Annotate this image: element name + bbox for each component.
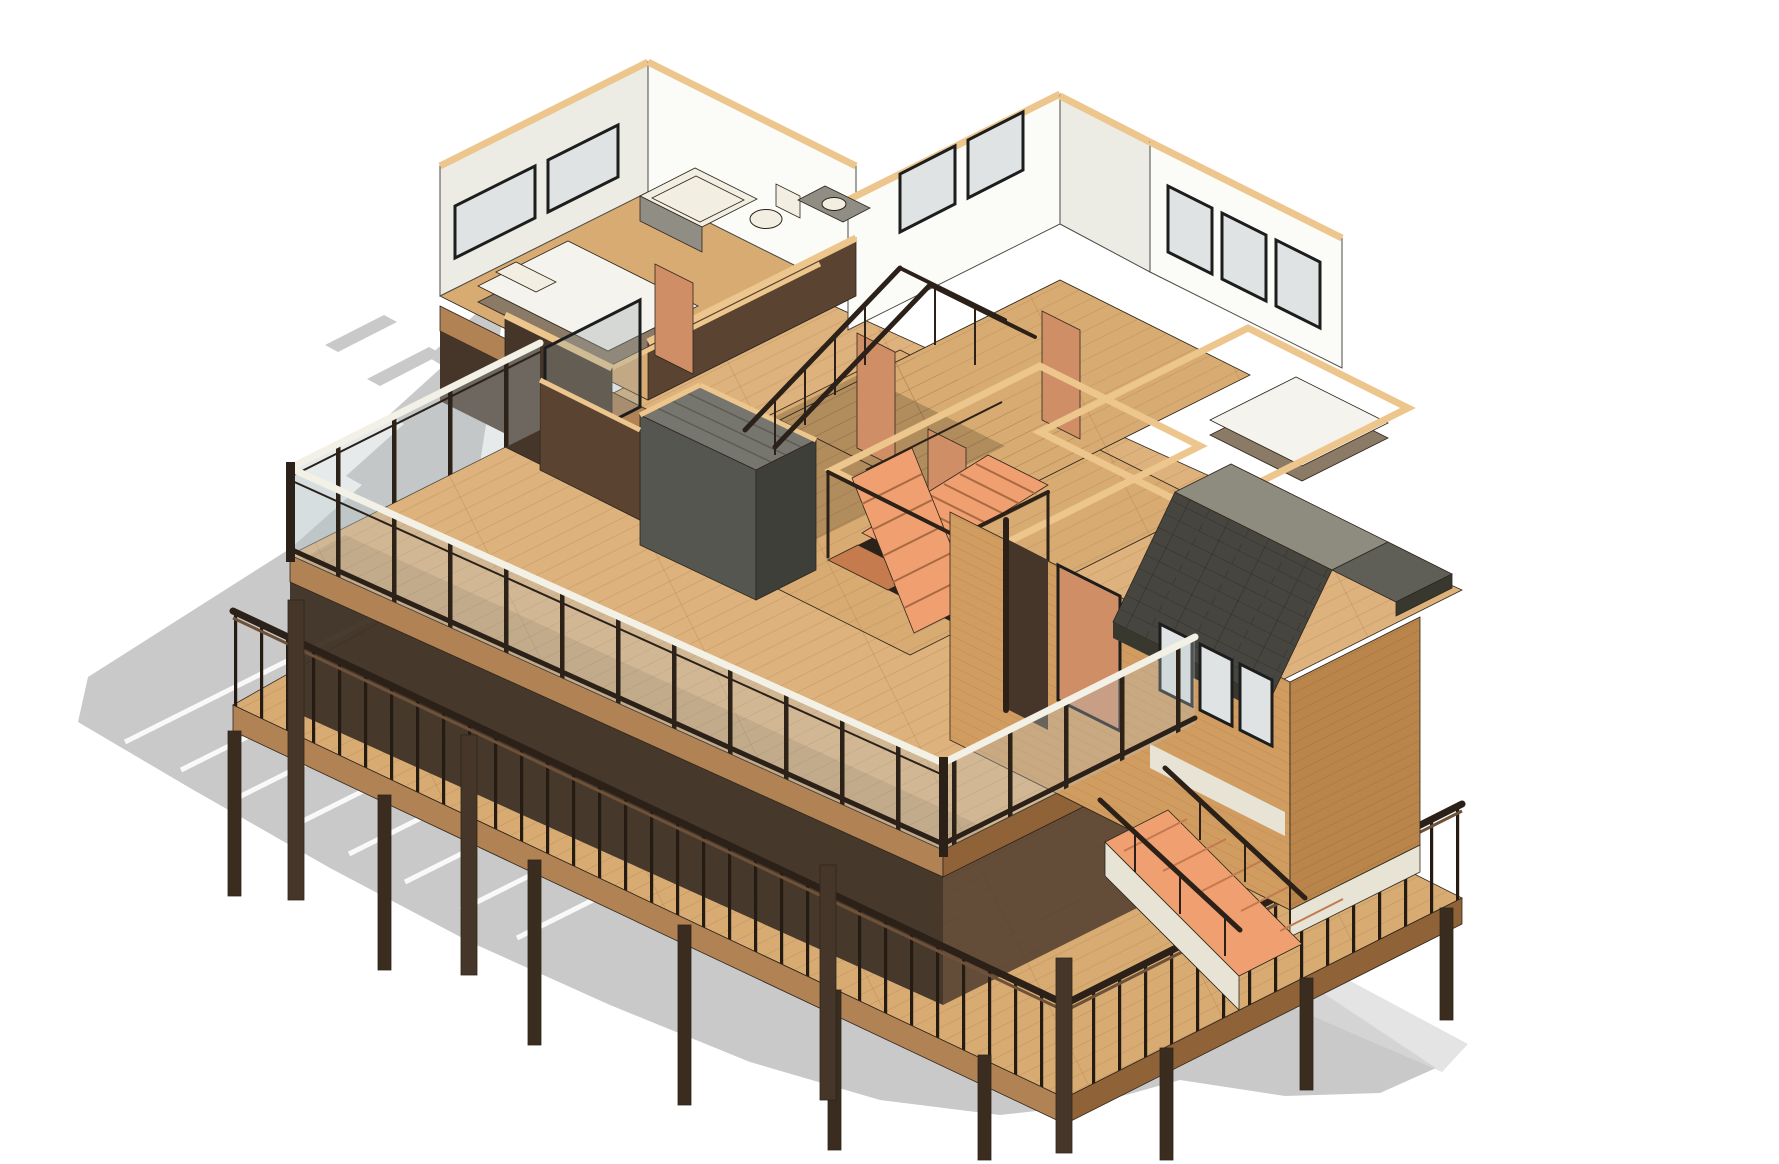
window [1240, 664, 1272, 746]
3d-model-viewport[interactable] [0, 0, 1779, 1164]
sink [822, 198, 846, 211]
corner-post [286, 462, 295, 562]
toilet [750, 210, 782, 229]
corner-post [939, 757, 948, 857]
bed-mattress [1210, 377, 1388, 466]
render-canvas[interactable] [0, 0, 1779, 1164]
door [655, 264, 693, 374]
shadow-step-1 [325, 315, 397, 352]
window [1200, 644, 1232, 726]
porch-recess [1005, 538, 1048, 730]
